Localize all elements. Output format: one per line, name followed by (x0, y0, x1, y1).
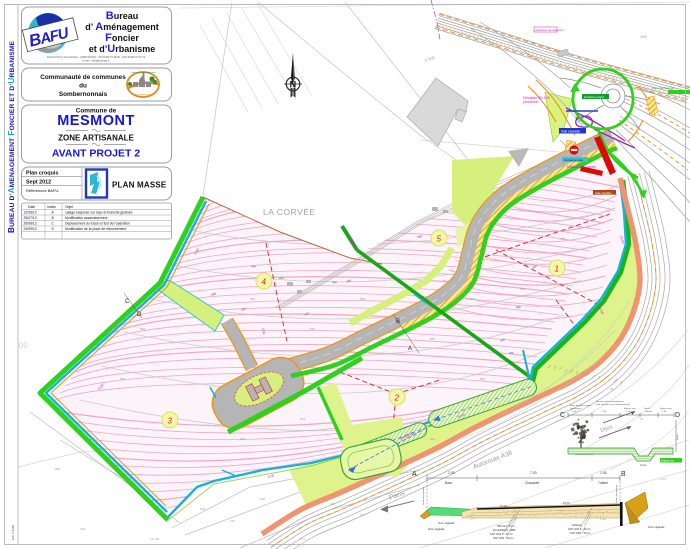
svg-text:26/08/12: 26/08/12 (24, 222, 37, 226)
svg-text:Gravier: Gravier (645, 410, 652, 413)
svg-text:N: N (290, 80, 297, 90)
svg-text:199: 199 (90, 437, 95, 441)
svg-text:506: 506 (430, 337, 435, 341)
svg-text:196: 196 (230, 519, 235, 523)
svg-text:GNT 0/31.5 - 20 cm: GNT 0/31.5 - 20 cm (568, 527, 591, 531)
svg-text:Maintien de l'accès: Maintien de l'accès (567, 165, 596, 169)
svg-text:518: 518 (120, 377, 125, 381)
svg-text:← 2% Tn: ← 2% Tn (560, 502, 571, 505)
svg-text:A: A (408, 346, 412, 352)
svg-text:5: 5 (437, 235, 442, 244)
svg-text:Date: Date (28, 205, 35, 209)
svg-text:du Sombernonnais: du Sombernonnais (135, 94, 152, 96)
svg-text:Espace vert: Espace vert (661, 460, 675, 463)
svg-text:Terre végétale: Terre végétale (428, 527, 445, 531)
svg-text:GNT 0/31.5 - 20 cm: GNT 0/31.5 - 20 cm (490, 532, 513, 536)
svg-text:Espace vert: Espace vert (660, 407, 672, 410)
svg-text:régalement: régalement (570, 407, 581, 410)
svg-text:508: 508 (360, 297, 365, 301)
svg-text:520: 520 (140, 327, 145, 331)
svg-text:AVANT PROJET 2: AVANT PROJET 2 (52, 148, 140, 160)
svg-text:Vers Sombernon: Vers Sombernon (652, 86, 675, 90)
svg-text:na 195: na 195 (150, 537, 160, 541)
svg-text:GNT 0/60 - 30 cm: GNT 0/60 - 30 cm (570, 531, 591, 535)
svg-text:e-mail : bafu@orange.fr: e-mail : bafu@orange.fr (82, 59, 109, 63)
svg-text:1.94: 1.94 (600, 517, 606, 521)
svg-text:Terre végétale: Terre végétale (648, 525, 665, 529)
svg-text:12/06/12: 12/06/12 (24, 211, 37, 215)
svg-text:du: du (79, 83, 87, 90)
svg-text:GB 0/14 - 8 cm: GB 0/14 - 8 cm (497, 524, 514, 528)
svg-text:502: 502 (520, 287, 525, 291)
svg-text:A: A (412, 471, 417, 478)
svg-text:Voie rétablie: Voie rétablie (595, 191, 612, 195)
svg-text:ZONE ARTISANALE: ZONE ARTISANALE (58, 134, 134, 143)
svg-text:Trottoir: Trottoir (598, 481, 609, 485)
svg-text:C: C (560, 412, 565, 419)
svg-text:196: 196 (260, 497, 265, 501)
svg-text:et d’Urbanisme: et d’Urbanisme (89, 43, 156, 55)
svg-text:248: 248 (80, 527, 85, 531)
svg-text:510: 510 (310, 327, 315, 331)
svg-text:Giratoire projet: Giratoire projet (584, 95, 604, 99)
svg-text:D: D (675, 412, 680, 419)
svg-text:24/09/12: 24/09/12 (24, 227, 37, 231)
svg-text:Communauté de communes: Communauté de communes (130, 71, 155, 74)
svg-text:1.50: 1.50 (600, 471, 607, 475)
svg-text:Références BAFU:: Références BAFU: (26, 188, 59, 193)
svg-text:25/07/12: 25/07/12 (24, 216, 37, 220)
svg-text:195: 195 (200, 507, 205, 511)
svg-text:516: 516 (240, 437, 245, 441)
svg-text:Limite de propriété: Limite de propriété (422, 486, 425, 505)
svg-text:1/4: 1/4 (575, 476, 580, 480)
svg-text:7.00: 7.00 (530, 471, 537, 475)
svg-text:3: 3 (168, 417, 173, 426)
svg-text:Communauté de communes: Communauté de communes (40, 74, 126, 81)
svg-text:Sombernonnais: Sombernonnais (59, 91, 108, 98)
svg-text:Ancienne voie: Ancienne voie (564, 158, 583, 162)
svg-text:Terrasse pour aménagement: Terrasse pour aménagement (596, 400, 624, 403)
svg-text:500: 500 (480, 377, 485, 381)
svg-text:d’ Aménagement: d’ Aménagement (85, 21, 159, 33)
svg-text:Fossé: Fossé (644, 408, 651, 410)
svg-text:Modification de la place de re: Modification de la place de retournement (65, 227, 126, 231)
svg-text:512: 512 (250, 297, 255, 301)
svg-text:1: 1 (555, 265, 559, 274)
svg-text:514: 514 (300, 417, 305, 421)
svg-text:197: 197 (360, 513, 365, 517)
svg-text:10 Rond Point de la Nation - 2: 10 Rond Point de la Nation - 21000 DIJON… (47, 55, 146, 59)
svg-text:Direction Sombernon: Direction Sombernon (536, 28, 565, 32)
svg-text:B: B (621, 471, 626, 478)
svg-text:B: B (396, 319, 400, 325)
svg-text:195: 195 (640, 34, 647, 39)
svg-text:MESMONT: MESMONT (57, 113, 135, 129)
svg-text:BUREAU D’AMENAGEMENT FONCIER E: BUREAU D’AMENAGEMENT FONCIER ET D’URBANI… (7, 40, 16, 233)
svg-text:provisoire: provisoire (523, 100, 538, 104)
svg-text:4: 4 (262, 278, 267, 287)
svg-text:Chaussée: Chaussée (525, 481, 540, 485)
svg-text:Asblayer: Asblayer (572, 523, 582, 527)
svg-text:2.14: 2.14 (660, 477, 666, 481)
svg-text:futur (chemin et accompagnemen: futur (chemin et accompagnement) (596, 403, 630, 406)
svg-text:Bàco: Bàco (445, 481, 452, 485)
svg-text:Limite: Limite (676, 433, 679, 440)
svg-text:Plan croquis: Plan croquis (26, 171, 58, 177)
svg-text:504: 504 (470, 297, 475, 301)
svg-text:Limite de propriété: Limite de propriété (615, 484, 618, 503)
svg-text:calage esquisse sur topo et br: calage esquisse sur topo et branche gira… (65, 211, 133, 215)
svg-text:200: 200 (55, 467, 60, 471)
svg-text:Indice: Indice (47, 205, 56, 209)
svg-text:Déplacement du fossé à l'Est d: Déplacement du fossé à l'Est de l'opérat… (65, 222, 130, 226)
svg-text:31: 31 (610, 387, 614, 391)
svg-text:2: 2 (394, 394, 400, 403)
svg-text:Modification assainissement: Modification assainissement (65, 216, 107, 220)
svg-text:32: 32 (640, 417, 644, 421)
svg-text:Tn 2% →: Tn 2% → (500, 505, 510, 508)
svg-text:21.4: 21.4 (300, 537, 306, 541)
svg-text:PLAN MASSE: PLAN MASSE (112, 181, 167, 190)
svg-text:GNT 0/60 - 30 cm: GNT 0/60 - 30 cm (493, 536, 514, 540)
svg-text:Sept 2012: Sept 2012 (26, 180, 51, 186)
svg-text:Objet: Objet (65, 205, 73, 209)
svg-text:204: 204 (430, 437, 435, 441)
svg-text:Voie nouvelle: Voie nouvelle (561, 130, 580, 134)
svg-text:Fossé: Fossé (640, 464, 647, 467)
svg-text:197: 197 (330, 502, 335, 506)
svg-text:Espace vert: Espace vert (624, 407, 636, 410)
svg-text:Noue enherbée après: Noue enherbée après (570, 404, 592, 407)
svg-text:Terre végétale: Terre végétale (438, 521, 455, 525)
svg-text:2.00: 2.00 (448, 471, 455, 475)
svg-text:Bureau: Bureau (106, 10, 138, 22)
svg-text:Ech 1/1000: Ech 1/1000 (11, 524, 15, 540)
svg-text:498: 498 (560, 237, 565, 241)
svg-text:LA CORVÉE: LA CORVÉE (263, 207, 316, 217)
